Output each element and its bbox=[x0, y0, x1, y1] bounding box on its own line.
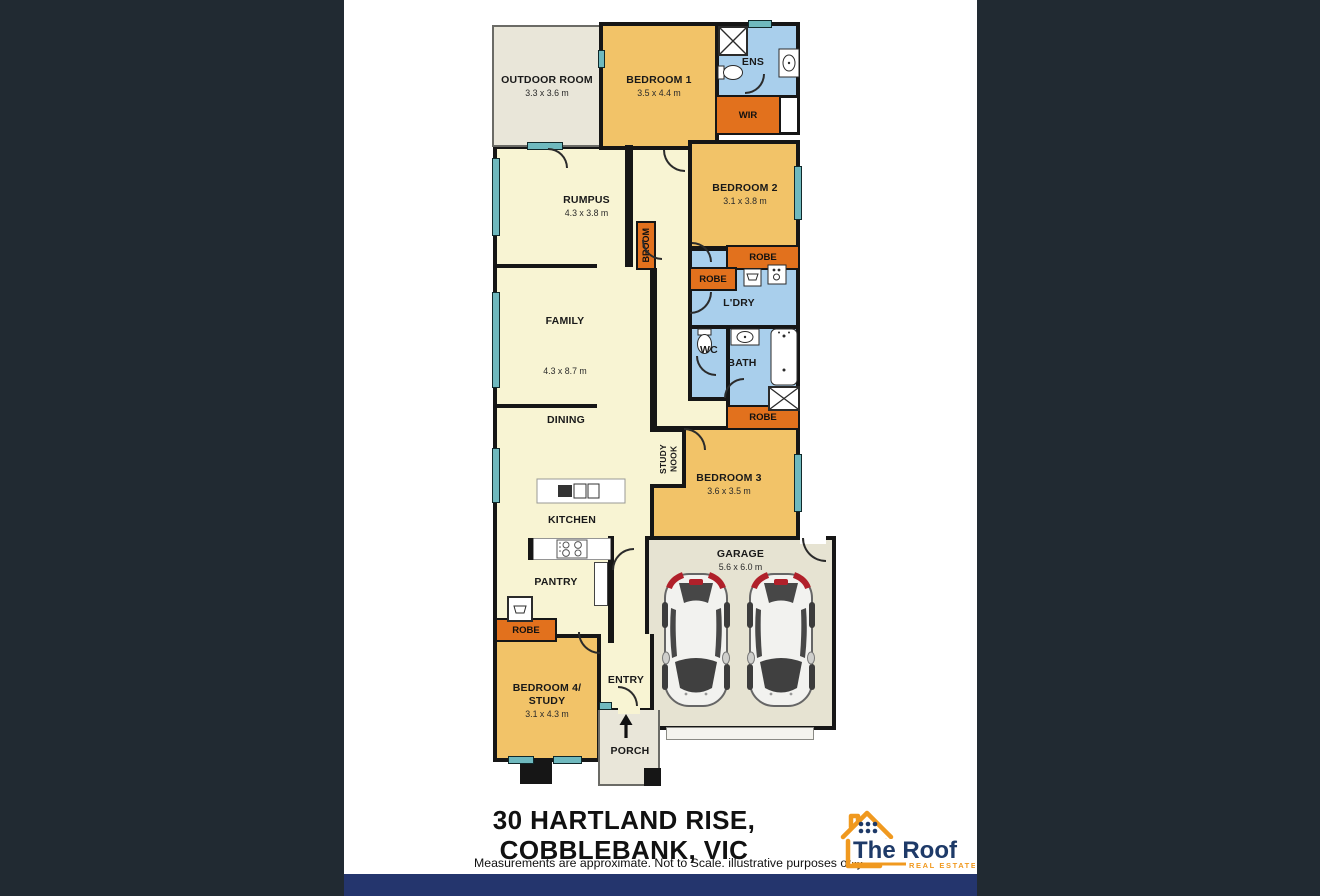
laundry-trough-icon bbox=[743, 268, 762, 287]
porch-label: PORCH bbox=[600, 745, 660, 758]
garage-door-band bbox=[666, 727, 814, 740]
bedroom1-dims: 3.5 x 4.4 m bbox=[599, 88, 719, 99]
window-bedroom1-left bbox=[598, 50, 605, 68]
bath-vanity-icon bbox=[730, 328, 760, 346]
bedroom4-label-line2: STUDY bbox=[529, 695, 566, 707]
agency-logo: The Roof REAL ESTATE bbox=[840, 806, 975, 872]
bottom-navy-bar bbox=[344, 874, 977, 896]
outdoor-dims: 3.3 x 3.6 m bbox=[492, 88, 602, 99]
window-entry-front bbox=[599, 702, 612, 710]
window-outdoor-bottom bbox=[527, 142, 563, 150]
bedroom2-label: BEDROOM 2 3.1 x 3.8 m bbox=[690, 182, 800, 207]
address-line1: 30 HARTLAND RISE, bbox=[404, 806, 844, 836]
rumpus-dims: 4.3 x 3.8 m bbox=[514, 208, 659, 219]
entry-door-gap bbox=[618, 705, 640, 714]
entry-arrow-icon bbox=[618, 714, 634, 738]
logo-tagline-text: REAL ESTATE bbox=[909, 861, 975, 870]
dining-label: DINING bbox=[506, 414, 626, 427]
disclaimer-text: Measurements are approximate. Not to Sca… bbox=[474, 856, 826, 870]
wall-family-dining-partial bbox=[497, 404, 597, 408]
window-left-1 bbox=[492, 158, 500, 236]
room-wir: WIR bbox=[715, 95, 781, 135]
floorplan-sheet: WIR ROBE ROBE ROBE ROBE BROOM bbox=[344, 0, 977, 896]
bedroom3-label: BEDROOM 3 3.6 x 3.5 m bbox=[674, 472, 784, 497]
logo-window-dots bbox=[859, 822, 878, 834]
window-bedroom3-right bbox=[794, 454, 802, 512]
window-ens-top bbox=[748, 20, 772, 28]
bedroom1-label: BEDROOM 1 3.5 x 4.4 m bbox=[599, 74, 719, 99]
wall-rumpus-family-partial bbox=[497, 264, 597, 268]
bedroom4-label: BEDROOM 4/ STUDY 3.1 x 4.3 m bbox=[496, 682, 598, 720]
kitchen-island-sink-icon bbox=[536, 478, 626, 504]
shower-icon bbox=[768, 386, 800, 411]
shower-icon bbox=[718, 26, 748, 56]
laundry-label: L'DRY bbox=[706, 297, 772, 310]
wc-label: WC bbox=[688, 344, 730, 357]
entry-label: ENTRY bbox=[598, 674, 654, 687]
garage-label: GARAGE 5.6 x 6.0 m bbox=[668, 548, 813, 573]
robe-label: ROBE bbox=[749, 252, 776, 263]
bedroom3-dims: 3.6 x 3.5 m bbox=[674, 486, 784, 497]
wall-family-wet-hall bbox=[650, 268, 657, 430]
window-bedroom4-bottom-1 bbox=[508, 756, 534, 764]
robe-label: ROBE bbox=[749, 412, 776, 423]
ens-label: ENS bbox=[732, 56, 774, 69]
robe-bedroom2: ROBE bbox=[726, 245, 800, 270]
cooktop-counter-icon bbox=[533, 538, 611, 560]
kitchen-label: KITCHEN bbox=[512, 514, 632, 527]
robe-laundry: ROBE bbox=[689, 267, 737, 291]
car-icon bbox=[662, 570, 730, 710]
wir-label: WIR bbox=[739, 110, 757, 121]
bedroom4-dims: 3.1 x 4.3 m bbox=[496, 709, 598, 720]
window-bedroom4-bottom-2 bbox=[553, 756, 582, 764]
living-dims-label: 4.3 x 8.7 m bbox=[505, 365, 625, 377]
bedroom2-dims: 3.1 x 3.8 m bbox=[690, 196, 800, 207]
logo-brand-text: The Roof bbox=[853, 837, 958, 864]
bathtub-icon bbox=[770, 328, 798, 386]
robe-label: ROBE bbox=[512, 625, 539, 636]
pantry-label: PANTRY bbox=[508, 576, 604, 589]
outdoor-label: OUTDOOR ROOM 3.3 x 3.6 m bbox=[492, 74, 602, 99]
window-left-3 bbox=[492, 448, 500, 503]
car-icon bbox=[747, 570, 815, 710]
washing-machine-icon bbox=[767, 264, 787, 285]
rumpus-label: RUMPUS 4.3 x 3.8 m bbox=[514, 194, 659, 219]
vanity-sink-icon bbox=[778, 48, 800, 78]
window-left-2 bbox=[492, 292, 500, 388]
garage-dims: 5.6 x 6.0 m bbox=[668, 562, 813, 573]
bath-label: BATH bbox=[716, 357, 768, 370]
family-label: FAMILY bbox=[505, 315, 625, 328]
page-background: WIR ROBE ROBE ROBE ROBE BROOM bbox=[0, 0, 1320, 896]
pillar-porch-step bbox=[644, 768, 661, 786]
robe-label: ROBE bbox=[699, 274, 726, 285]
trough-cabinet-icon bbox=[507, 596, 533, 622]
